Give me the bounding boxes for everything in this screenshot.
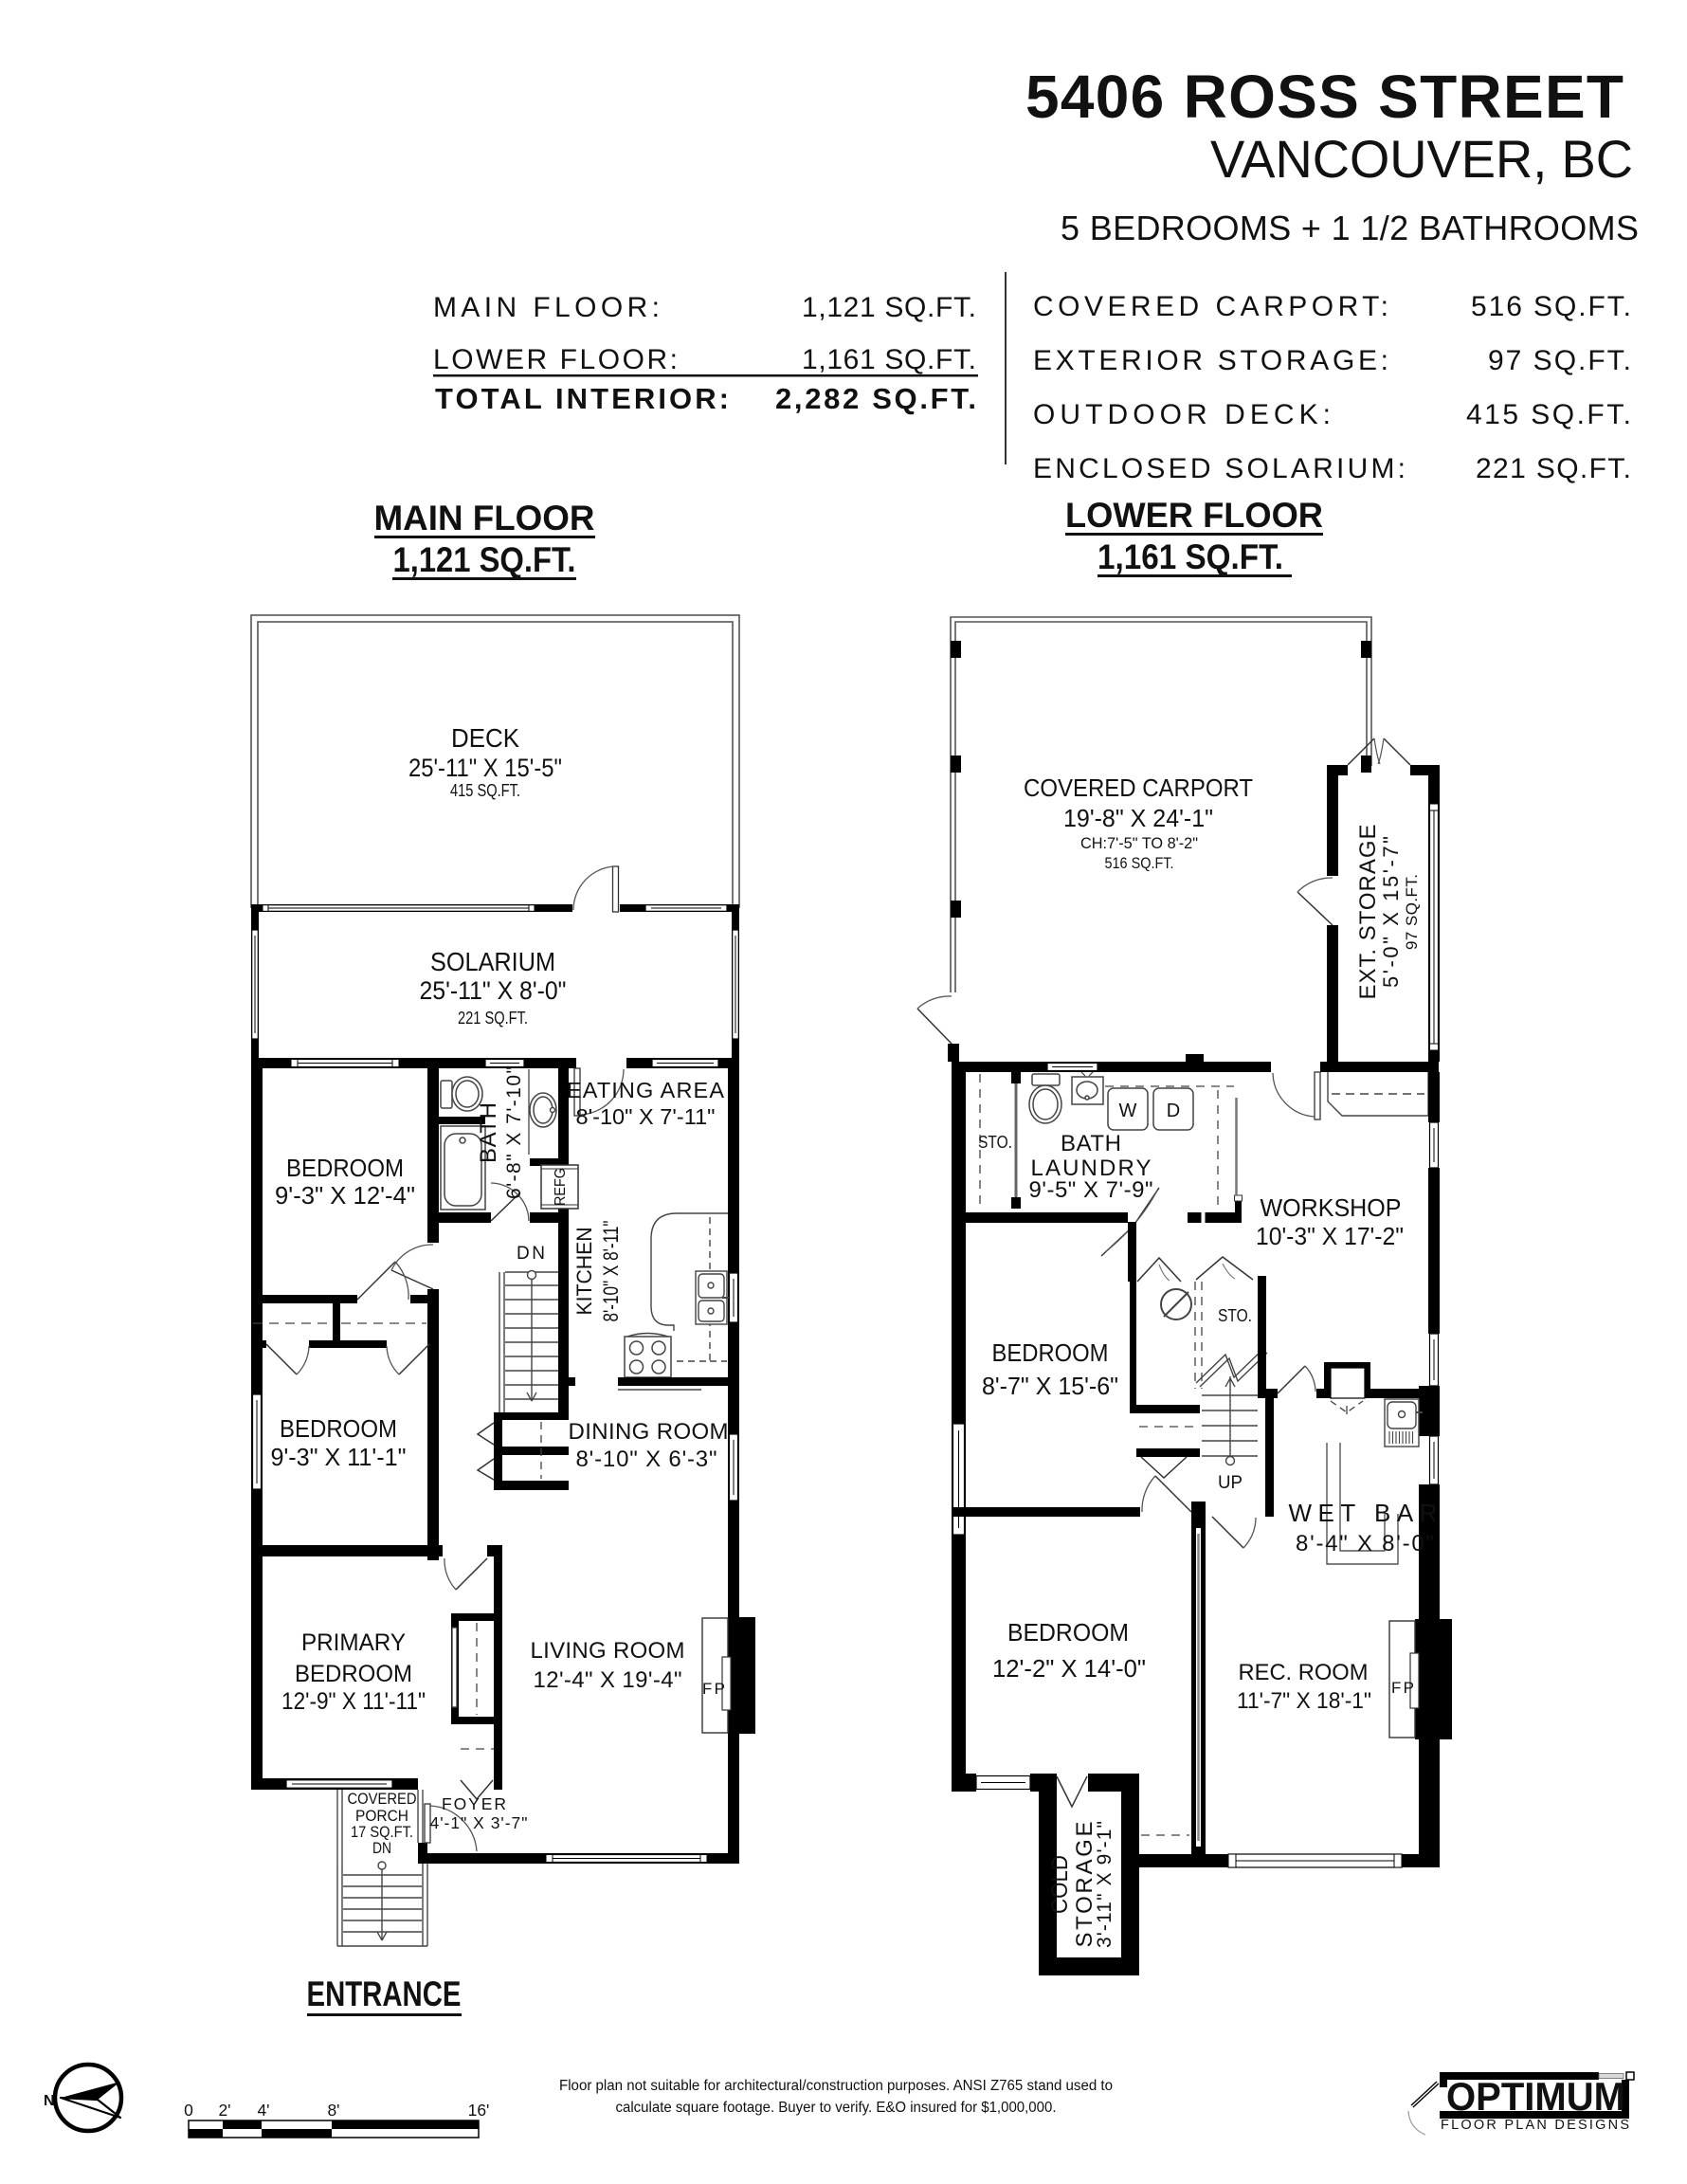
svg-text:KITCHEN: KITCHEN: [572, 1228, 596, 1316]
svg-text:8'-10" X 6'-3": 8'-10" X 6'-3": [576, 1447, 717, 1472]
svg-text:8': 8': [327, 2101, 339, 2120]
svg-text:LOWER FLOOR: LOWER FLOOR: [1065, 496, 1323, 535]
svg-text:1,121 SQ.FT.: 1,121 SQ.FT.: [393, 540, 576, 579]
svg-text:221 SQ.FT.: 221 SQ.FT.: [1476, 453, 1631, 484]
svg-text:4'-1" X 3'-7": 4'-1" X 3'-7": [430, 1813, 528, 1832]
svg-text:8'-10" X 8'-11": 8'-10" X 8'-11": [599, 1221, 623, 1322]
svg-text:PRIMARY: PRIMARY: [301, 1629, 406, 1656]
svg-text:1,161 SQ.FT.: 1,161 SQ.FT.: [802, 344, 976, 375]
svg-text:DECK: DECK: [451, 723, 519, 753]
svg-text:SOLARIUM: SOLARIUM: [430, 947, 555, 976]
svg-text:97 SQ.FT.: 97 SQ.FT.: [1403, 874, 1421, 950]
svg-text:5406 ROSS STREET: 5406 ROSS STREET: [1025, 63, 1624, 131]
svg-text:CH:7'-5" TO 8'-2": CH:7'-5" TO 8'-2": [1080, 834, 1198, 852]
svg-text:COVERED: COVERED: [348, 1790, 417, 1808]
svg-text:WET BAR: WET BAR: [1289, 1499, 1438, 1527]
svg-text:calculate square footage. Buye: calculate square footage. Buyer to verif…: [616, 2100, 1057, 2116]
svg-text:UP: UP: [1218, 1473, 1243, 1493]
svg-text:DN: DN: [517, 1244, 545, 1264]
svg-text:1,121 SQ.FT.: 1,121 SQ.FT.: [802, 292, 976, 323]
svg-text:STO.: STO.: [1218, 1306, 1252, 1325]
svg-text:19'-8" X 24'-1": 19'-8" X 24'-1": [1063, 804, 1213, 832]
svg-text:BEDROOM: BEDROOM: [286, 1154, 404, 1182]
svg-text:BEDROOM: BEDROOM: [280, 1414, 397, 1443]
svg-text:BATH: BATH: [476, 1102, 501, 1163]
svg-text:REFG: REFG: [553, 1168, 569, 1206]
svg-text:TOTAL INTERIOR:: TOTAL INTERIOR:: [435, 382, 729, 415]
svg-text:2': 2': [218, 2101, 230, 2120]
svg-text:Floor plan not suitable for ar: Floor plan not suitable for architectura…: [559, 2078, 1113, 2094]
svg-text:FOYER: FOYER: [442, 1794, 506, 1813]
svg-text:MAIN FLOOR:: MAIN FLOOR:: [433, 292, 660, 323]
svg-text:25'-11" X 15'-5": 25'-11" X 15'-5": [408, 754, 562, 782]
svg-text:DINING ROOM: DINING ROOM: [569, 1419, 729, 1445]
svg-text:W: W: [1119, 1101, 1137, 1121]
svg-text:11'-7" X 18'-1": 11'-7" X 18'-1": [1237, 1688, 1371, 1714]
svg-text:EXTERIOR STORAGE:: EXTERIOR STORAGE:: [1033, 345, 1388, 376]
svg-text:DN: DN: [372, 1839, 391, 1857]
svg-text:EATING AREA: EATING AREA: [567, 1078, 724, 1102]
svg-text:516 SQ.FT.: 516 SQ.FT.: [1105, 854, 1174, 872]
svg-text:2,282 SQ.FT.: 2,282 SQ.FT.: [775, 382, 976, 415]
svg-text:OPTIMUM: OPTIMUM: [1446, 2074, 1625, 2119]
svg-text:MAIN FLOOR: MAIN FLOOR: [374, 499, 595, 537]
svg-text:D: D: [1167, 1101, 1180, 1121]
svg-text:8'-10" X 7'-11": 8'-10" X 7'-11": [576, 1104, 716, 1129]
svg-text:VANCOUVER, BC: VANCOUVER, BC: [1210, 129, 1633, 189]
svg-text:FP: FP: [1391, 1679, 1414, 1697]
svg-text:25'-11" X 8'-0": 25'-11" X 8'-0": [420, 976, 567, 1005]
svg-text:STO.: STO.: [978, 1133, 1012, 1152]
svg-text:OUTDOOR DECK:: OUTDOOR DECK:: [1033, 399, 1331, 430]
svg-text:221 SQ.FT.: 221 SQ.FT.: [458, 1009, 528, 1028]
svg-text:BEDROOM: BEDROOM: [992, 1338, 1109, 1367]
svg-text:415 SQ.FT.: 415 SQ.FT.: [1466, 399, 1631, 430]
svg-text:12'-4" X 19'-4": 12'-4" X 19'-4": [534, 1667, 682, 1693]
svg-text:5'-0" X 15'-7": 5'-0" X 15'-7": [1379, 836, 1403, 988]
svg-text:9'-3" X 11'-1": 9'-3" X 11'-1": [271, 1443, 407, 1471]
svg-text:BEDROOM: BEDROOM: [295, 1661, 412, 1687]
svg-text:10'-3" X 17'-2": 10'-3" X 17'-2": [1256, 1222, 1404, 1250]
svg-text:415 SQ.FT.: 415 SQ.FT.: [450, 781, 520, 800]
svg-text:5 BEDROOMS + 1 1/2 BATHROOMS: 5 BEDROOMS + 1 1/2 BATHROOMS: [1061, 209, 1639, 247]
svg-text:97 SQ.FT.: 97 SQ.FT.: [1488, 345, 1631, 376]
svg-text:COVERED CARPORT:: COVERED CARPORT:: [1033, 291, 1388, 322]
svg-text:12'-2" X 14'-0": 12'-2" X 14'-0": [992, 1654, 1146, 1683]
svg-text:3'-11" X 9'-1": 3'-11" X 9'-1": [1094, 1821, 1116, 1948]
svg-text:COVERED CARPORT: COVERED CARPORT: [1024, 773, 1253, 802]
svg-text:0: 0: [184, 2101, 193, 2120]
svg-text:8'-4" X 8'-0": 8'-4" X 8'-0": [1296, 1531, 1434, 1556]
svg-text:12'-9" X 11'-11": 12'-9" X 11'-11": [281, 1688, 426, 1715]
svg-text:WORKSHOP: WORKSHOP: [1261, 1193, 1402, 1222]
svg-text:LIVING ROOM: LIVING ROOM: [531, 1638, 685, 1664]
svg-text:EXT. STORAGE: EXT. STORAGE: [1355, 825, 1381, 1000]
svg-text:16': 16': [468, 2101, 490, 2120]
svg-text:FP: FP: [702, 1680, 725, 1698]
svg-text:6'-8" X 7'-10": 6'-8" X 7'-10": [503, 1066, 525, 1199]
svg-text:9'-3" X 12'-4": 9'-3" X 12'-4": [275, 1181, 415, 1210]
svg-text:REC. ROOM: REC. ROOM: [1239, 1660, 1369, 1685]
svg-text:N: N: [44, 2093, 55, 2109]
svg-text:FLOOR PLAN DESIGNS: FLOOR PLAN DESIGNS: [1441, 2118, 1629, 2133]
svg-text:9'-5" X 7'-9": 9'-5" X 7'-9": [1029, 1177, 1153, 1203]
svg-text:BEDROOM: BEDROOM: [1007, 1618, 1129, 1647]
svg-text:BATH: BATH: [1061, 1131, 1121, 1156]
svg-text:COLD: COLD: [1047, 1855, 1073, 1914]
svg-text:ENCLOSED SOLARIUM:: ENCLOSED SOLARIUM:: [1033, 453, 1406, 484]
svg-text:8'-7" X 15'-6": 8'-7" X 15'-6": [982, 1372, 1118, 1400]
svg-text:LOWER FLOOR:: LOWER FLOOR:: [433, 344, 678, 375]
svg-text:ENTRANCE: ENTRANCE: [307, 1975, 462, 2013]
svg-text:4': 4': [257, 2101, 269, 2120]
svg-text:516 SQ.FT.: 516 SQ.FT.: [1471, 291, 1631, 322]
svg-text:1,161 SQ.FT.: 1,161 SQ.FT.: [1097, 537, 1283, 576]
